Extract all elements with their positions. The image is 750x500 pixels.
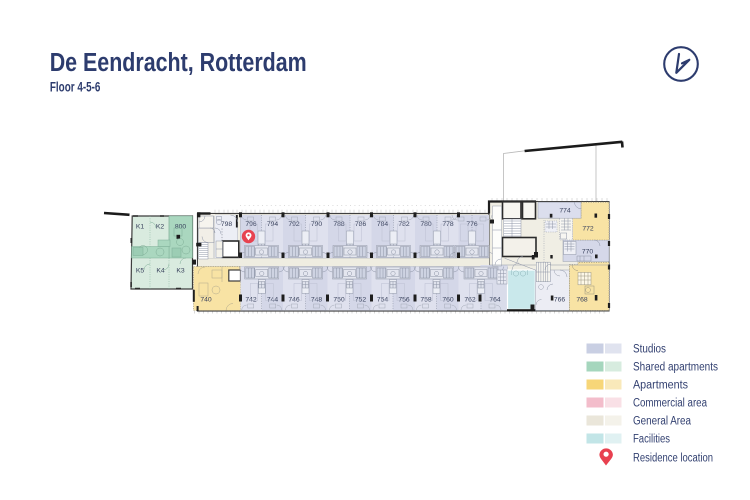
- svg-text:800: 800: [175, 224, 187, 231]
- svg-text:782: 782: [398, 221, 410, 228]
- svg-text:784: 784: [377, 221, 389, 228]
- svg-text:796: 796: [245, 221, 257, 228]
- svg-text:Shared apartments: Shared apartments: [633, 362, 718, 374]
- svg-text:Residence location: Residence location: [633, 453, 713, 465]
- svg-text:Facilities: Facilities: [633, 434, 670, 446]
- svg-text:778: 778: [442, 221, 454, 228]
- svg-text:Commercial area: Commercial area: [633, 398, 708, 410]
- svg-text:758: 758: [420, 297, 432, 304]
- svg-text:798: 798: [221, 221, 233, 228]
- svg-text:772: 772: [582, 226, 594, 233]
- svg-text:748: 748: [311, 297, 323, 304]
- svg-text:K3: K3: [176, 268, 185, 275]
- svg-text:752: 752: [355, 297, 367, 304]
- svg-text:Studios: Studios: [633, 344, 666, 356]
- svg-text:794: 794: [267, 221, 279, 228]
- svg-text:790: 790: [311, 221, 323, 228]
- svg-text:Apartments: Apartments: [633, 380, 688, 392]
- svg-text:774: 774: [559, 208, 571, 215]
- svg-text:788: 788: [333, 221, 345, 228]
- svg-text:756: 756: [398, 297, 410, 304]
- svg-text:764: 764: [489, 297, 501, 304]
- svg-text:766: 766: [554, 297, 566, 304]
- svg-text:754: 754: [377, 297, 389, 304]
- svg-text:742: 742: [245, 297, 257, 304]
- svg-text:744: 744: [267, 297, 279, 304]
- svg-text:780: 780: [420, 221, 432, 228]
- svg-text:K5: K5: [136, 268, 145, 275]
- svg-text:762: 762: [464, 297, 476, 304]
- svg-text:De Eendracht, Rotterdam: De Eendracht, Rotterdam: [50, 49, 307, 77]
- svg-text:K1: K1: [136, 224, 145, 231]
- svg-text:770: 770: [582, 249, 594, 256]
- svg-text:768: 768: [576, 297, 588, 304]
- svg-text:K4: K4: [156, 268, 165, 275]
- svg-text:Floor 4-5-6: Floor 4-5-6: [50, 80, 101, 95]
- svg-text:786: 786: [355, 221, 367, 228]
- svg-text:750: 750: [333, 297, 345, 304]
- svg-text:740: 740: [200, 297, 212, 304]
- svg-text:General Area: General Area: [633, 416, 692, 428]
- svg-text:K2: K2: [156, 224, 165, 231]
